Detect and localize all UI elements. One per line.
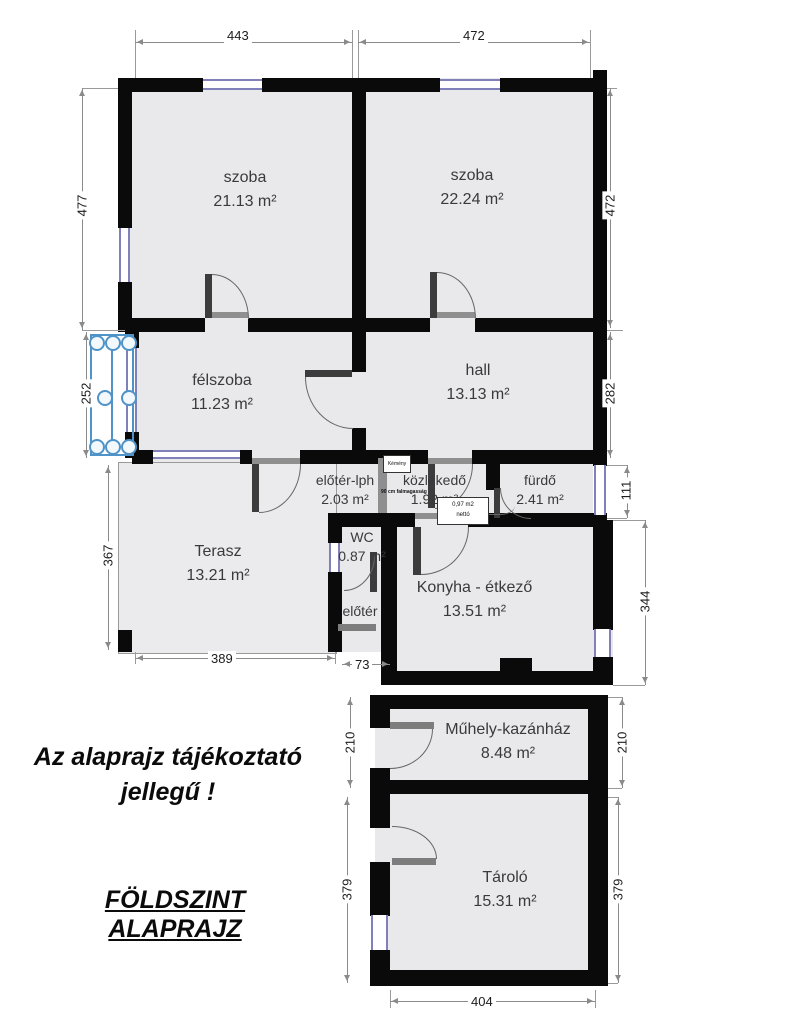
- wall-segment: [370, 695, 390, 728]
- chimney-label: Kémény: [388, 461, 406, 467]
- room-name: szoba: [165, 166, 325, 190]
- stair-post: [121, 439, 137, 455]
- window: [153, 450, 240, 459]
- room-label-muhely: Műhely-kazánház 8.48 m²: [408, 718, 608, 766]
- room-label-felszoba: félszoba 11.23 m²: [142, 369, 302, 417]
- room-area: 13.13 m²: [398, 383, 558, 407]
- wall-segment: [370, 695, 608, 709]
- wall-segment: [370, 862, 390, 916]
- dimension-label: 379: [610, 876, 625, 904]
- wall-segment: [472, 450, 607, 464]
- wall-segment: [370, 794, 390, 828]
- dimension-label: 344: [637, 588, 652, 616]
- wall-segment: [240, 450, 252, 464]
- dimension-label: 404: [468, 994, 496, 1009]
- dimension-label: 477: [74, 192, 89, 220]
- dimension-label: 252: [78, 380, 93, 408]
- wall-segment: [500, 78, 607, 92]
- window: [203, 79, 262, 90]
- window: [371, 915, 388, 950]
- dimension-label: 389: [208, 651, 236, 666]
- dimension-label: 282: [602, 380, 617, 408]
- room-area: 8.48 m²: [408, 742, 608, 766]
- wall-segment: [593, 520, 613, 630]
- wall-segment: [328, 638, 342, 652]
- room-area: 11.23 m²: [142, 393, 302, 417]
- window: [119, 228, 130, 282]
- wall-segment: [381, 671, 613, 685]
- wall-segment: [370, 780, 608, 794]
- chimney-box: Kémény: [383, 455, 411, 473]
- wall-segment: [118, 630, 132, 652]
- room-label-konyha: Konyha - étkező 13.51 m²: [382, 576, 567, 624]
- room-label-szoba2: szoba 22.24 m²: [392, 164, 552, 212]
- wall-segment: [475, 318, 607, 332]
- door-leaf: [392, 858, 436, 865]
- room-label-terasz: Terasz 13.21 m²: [138, 540, 298, 588]
- extension-line: [613, 685, 645, 686]
- wall-segment: [500, 658, 532, 671]
- dimension-label: 472: [460, 28, 488, 43]
- wall-segment: [366, 78, 440, 92]
- wall-segment: [262, 78, 366, 92]
- door-leaf: [430, 272, 437, 318]
- extension-line: [613, 520, 645, 521]
- net-area-label: 0,97 m2 nettó: [446, 501, 480, 520]
- door-leaf: [338, 624, 376, 631]
- room-area: 13.51 m²: [382, 600, 567, 624]
- stair-post: [121, 390, 137, 406]
- window: [440, 79, 500, 90]
- net-area-box: 0,97 m2 nettó: [437, 497, 489, 525]
- room-name: szoba: [392, 164, 552, 188]
- extension-line: [358, 30, 359, 78]
- room-name: Konyha - étkező: [382, 576, 567, 600]
- room-name: WC: [330, 528, 394, 547]
- room-area: 13.21 m²: [138, 564, 298, 588]
- extension-line: [352, 30, 353, 78]
- stair-post: [105, 335, 121, 351]
- room-label-wc: WC 0.87 m²: [330, 528, 394, 566]
- wall-segment: [118, 78, 132, 228]
- stair-post: [105, 439, 121, 455]
- stair-post: [89, 439, 105, 455]
- room-name: Tároló: [405, 866, 605, 890]
- plan-disclaimer: Az alaprajz tájékoztató jellegű !: [18, 740, 318, 810]
- wall-segment: [118, 318, 205, 332]
- extension-line: [135, 30, 136, 78]
- door-leaf: [205, 274, 212, 318]
- dimension-label: 111: [618, 478, 633, 504]
- wall-segment: [366, 318, 430, 332]
- stair-post: [121, 335, 137, 351]
- extension-line: [590, 30, 591, 78]
- room-name: hall: [398, 359, 558, 383]
- dimension-label: 367: [100, 542, 115, 570]
- dimension-label: 73: [352, 657, 372, 672]
- door-leaf: [413, 527, 421, 575]
- dimension-label: 210: [342, 729, 357, 757]
- wall-segment: [352, 92, 366, 318]
- wall-segment: [352, 332, 366, 372]
- wall-height-note: 90 cm falmagasság: [381, 489, 427, 495]
- window: [594, 629, 611, 657]
- extension-line: [82, 88, 118, 89]
- wall-segment: [248, 318, 366, 332]
- wall-segment: [328, 588, 342, 600]
- room-area: 0.87 m²: [330, 547, 394, 566]
- dimension-label: 472: [602, 192, 617, 220]
- wall-segment: [328, 513, 415, 527]
- room-area: 15.31 m²: [405, 890, 605, 914]
- door-leaf: [305, 370, 352, 377]
- room-name: fürdő: [475, 471, 605, 490]
- dimension-label: 379: [339, 876, 354, 904]
- wall-segment: [370, 950, 390, 972]
- dimension-label: 210: [614, 729, 629, 757]
- room-label-szoba1: szoba 21.13 m²: [165, 166, 325, 214]
- room-name: félszoba: [142, 369, 302, 393]
- stair-post: [97, 390, 113, 406]
- room-name: Terasz: [138, 540, 298, 564]
- room-label-hall: hall 13.13 m²: [398, 359, 558, 407]
- room-name: Műhely-kazánház: [408, 718, 608, 742]
- door-leaf: [252, 464, 259, 512]
- room-label-tarolo: Tároló 15.31 m²: [405, 866, 605, 914]
- wall-segment: [370, 970, 608, 986]
- room-area: 21.13 m²: [165, 190, 325, 214]
- stair-post: [89, 335, 105, 351]
- dimension-label: 443: [224, 28, 252, 43]
- room-area: 22.24 m²: [392, 188, 552, 212]
- plan-title: FÖLDSZINT ALAPRAJZ: [38, 886, 312, 944]
- floor-plan-canvas: 443 472 477 252 367 472 282 111 344 210 …: [0, 0, 794, 1024]
